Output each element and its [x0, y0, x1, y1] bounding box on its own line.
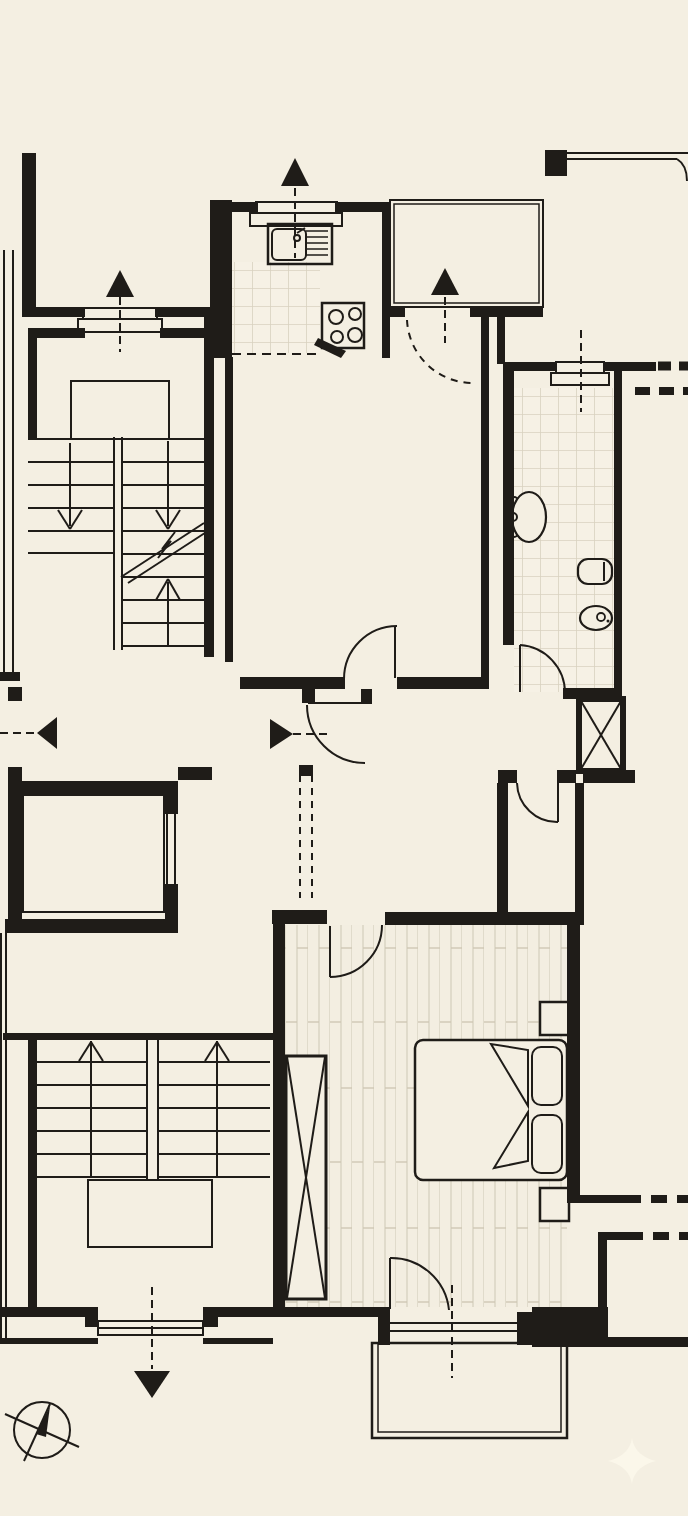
wall-bedroom-right	[567, 925, 580, 1203]
stair-arrow-up	[91, 1042, 103, 1061]
balcony-outline-inner	[378, 1343, 561, 1432]
upper-stair-landing	[71, 381, 169, 439]
bidet-dot	[607, 620, 610, 623]
entrance-door-arc-dashed	[407, 320, 473, 383]
direction-arrow-left	[37, 717, 57, 749]
wall-suite-left	[273, 911, 285, 1307]
pillow	[532, 1047, 562, 1105]
wall	[498, 770, 517, 783]
terrace-outline-outer	[390, 200, 543, 307]
door-jamb	[361, 689, 372, 704]
wall-livingroom-right	[481, 313, 489, 689]
wall	[28, 328, 85, 338]
stair-break-line	[128, 529, 211, 583]
wall	[0, 672, 20, 681]
wall-bottom-right	[532, 1337, 688, 1347]
sparkle-watermark	[608, 1438, 656, 1484]
wall	[497, 313, 505, 364]
wall	[598, 1240, 607, 1307]
stair-arrow-up	[168, 579, 180, 600]
kitchen-window-frame	[256, 202, 337, 213]
wall	[203, 1338, 273, 1344]
wall	[470, 307, 543, 317]
wall-elevator-top	[13, 781, 178, 794]
wall	[388, 307, 405, 317]
stair-arrow-up	[156, 579, 168, 600]
wall-bathroom-right	[614, 362, 622, 693]
wall	[28, 338, 37, 440]
door-jamb	[517, 1312, 532, 1345]
wall	[598, 1232, 627, 1240]
door-jamb	[8, 687, 22, 701]
nightstand	[540, 1002, 569, 1035]
wall-stairs-top-edge	[3, 1033, 273, 1040]
stair-arrow-down	[168, 510, 180, 529]
direction-arrow-up	[431, 268, 459, 295]
wall	[335, 202, 390, 212]
kitchen-floor-tiles	[232, 262, 320, 353]
wall-kitchen-right	[382, 202, 390, 358]
door-jamb	[378, 1307, 390, 1345]
stair-arrow-down	[70, 510, 82, 529]
wall-stairwell-left	[28, 1035, 37, 1307]
plan-layer	[0, 150, 688, 1484]
wall-corridor-top	[240, 677, 345, 689]
wall-bathroom-top	[503, 362, 556, 371]
wall-closet-left	[497, 783, 508, 912]
wall-stub	[545, 150, 567, 176]
stair-arrow-up	[205, 1042, 217, 1061]
terrace-outline-inner	[394, 204, 539, 303]
bidet	[580, 606, 612, 630]
direction-arrow-right	[270, 719, 293, 749]
wall	[580, 1195, 625, 1203]
wall	[165, 884, 178, 920]
wall	[178, 767, 212, 780]
pillow	[532, 1115, 562, 1173]
wall-entrance-right	[218, 1307, 273, 1317]
floor-plan-svg	[0, 0, 688, 1516]
wall-closet-right	[575, 783, 584, 925]
stair-arrow-down	[58, 510, 70, 529]
door-jamb	[299, 765, 313, 776]
stair-arrow-up	[79, 1042, 91, 1061]
wall	[232, 202, 258, 212]
direction-arrow-up	[281, 158, 309, 186]
wall-bathroom-bottom	[563, 688, 622, 699]
door-arc	[517, 783, 558, 822]
floor-plan-page	[0, 0, 688, 1516]
wall	[22, 153, 36, 317]
neighbor-door-arc	[677, 159, 687, 181]
door-jamb	[85, 1307, 98, 1327]
elevator-cabin	[23, 795, 164, 912]
door-arc	[344, 626, 397, 679]
direction-arrow-down	[134, 1371, 170, 1398]
wall-bedroom-bottom	[273, 1307, 380, 1317]
wall-stair-right	[204, 317, 214, 657]
wall	[557, 770, 576, 783]
wall	[165, 781, 178, 814]
wall	[155, 307, 213, 317]
door-jamb	[203, 1307, 218, 1327]
wall	[622, 362, 656, 371]
wall	[583, 770, 635, 783]
wall	[0, 1338, 98, 1344]
door-jamb	[302, 689, 315, 703]
wall	[28, 307, 85, 317]
nightstand	[540, 1188, 569, 1221]
toilet	[578, 559, 612, 584]
lower-stair-landing	[88, 1180, 212, 1247]
wall-bathroom-left	[503, 362, 514, 645]
balcony-outline-outer	[372, 1343, 567, 1438]
stair-arrow-down	[156, 510, 168, 529]
door-arc	[307, 705, 365, 763]
wall-bedroom-top	[385, 912, 575, 925]
stair-arrow-up	[217, 1042, 229, 1061]
direction-arrow-up	[106, 270, 134, 297]
wall-elevator-bottom	[5, 919, 178, 933]
wall-entrance-left	[0, 1307, 85, 1317]
kitchen-sink	[272, 229, 306, 260]
wall-corridor-top	[397, 677, 481, 689]
wall-livingroom-left	[225, 357, 233, 662]
